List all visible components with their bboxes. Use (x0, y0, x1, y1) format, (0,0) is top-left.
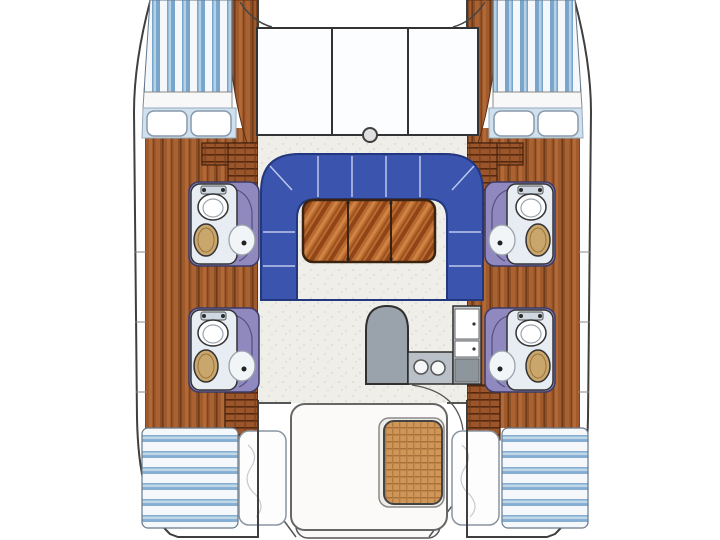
head-unit-starboard-forward (485, 182, 555, 266)
aft-berth-mattress (142, 428, 238, 528)
stove-front (455, 359, 479, 382)
head-unit-port-forward (189, 182, 259, 266)
floorplan-canvas (0, 0, 720, 540)
table-hinge-dot (389, 201, 392, 204)
mast-base (363, 128, 377, 142)
aft-berth-pillow (239, 431, 286, 525)
galley-sink-basin (414, 360, 428, 374)
table-hinge-dot (346, 201, 349, 204)
refrigerator-handle-dot (472, 322, 475, 325)
table-hinge-dot (389, 257, 392, 260)
cockpit-wicker-table (384, 421, 442, 504)
galley-sink-basin (431, 361, 445, 375)
head-unit-port-aft (189, 308, 259, 392)
aft-berth-pillow (452, 431, 499, 525)
aft-berth-port-group (142, 428, 286, 528)
freezer-handle-dot (472, 347, 475, 350)
head-unit-starboard-aft (485, 308, 555, 392)
table-hinge-dot (346, 257, 349, 260)
deck-hatch (332, 28, 408, 135)
deck-hatch (257, 28, 332, 135)
deck-hatch (408, 28, 478, 135)
aft-berth-mattress (502, 428, 588, 528)
aft-berth-starboard-group (452, 428, 588, 528)
catamaran-floorplan (0, 0, 720, 540)
salon-table (303, 200, 435, 262)
galley-counter-peninsula (366, 306, 408, 384)
